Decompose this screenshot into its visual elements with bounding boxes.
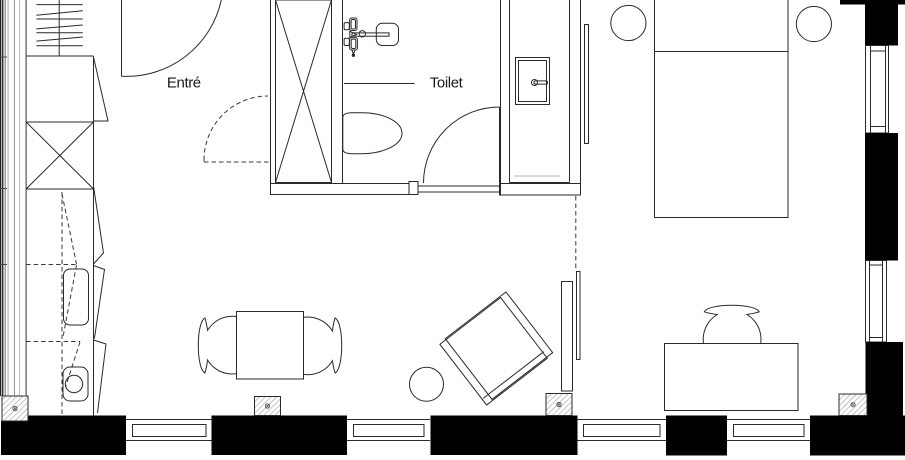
svg-text:Entré: Entré <box>167 75 201 92</box>
svg-text:Toilet: Toilet <box>430 75 464 92</box>
